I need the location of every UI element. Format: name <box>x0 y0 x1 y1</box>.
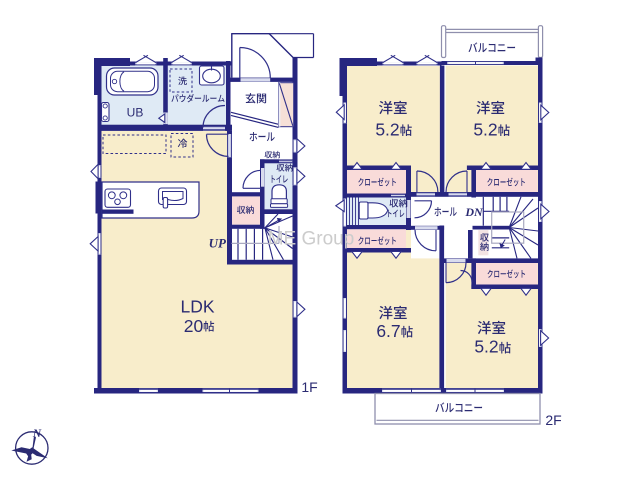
svg-text:5.2: 5.2 <box>375 120 399 140</box>
svg-text:5.2: 5.2 <box>474 337 498 357</box>
svg-text:UP: UP <box>209 236 227 251</box>
svg-text:6.7: 6.7 <box>376 321 400 341</box>
svg-text:LDK: LDK <box>180 297 214 317</box>
svg-text:5.2: 5.2 <box>473 120 497 140</box>
svg-text:20: 20 <box>184 316 204 336</box>
svg-text:UB: UB <box>127 106 144 120</box>
svg-text:DN: DN <box>464 205 484 219</box>
svg-text:2F: 2F <box>545 412 561 428</box>
svg-text:N: N <box>32 428 42 440</box>
svg-text:ME Group: ME Group <box>268 229 355 250</box>
svg-text:1F: 1F <box>301 379 317 395</box>
